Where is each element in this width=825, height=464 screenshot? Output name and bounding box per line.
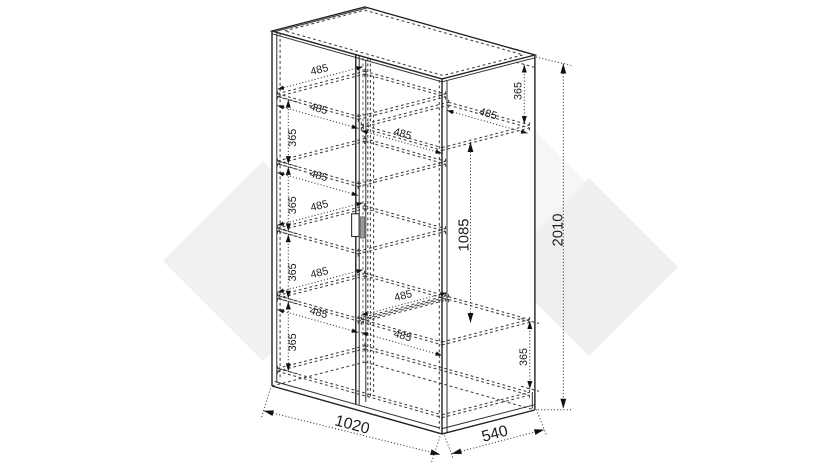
svg-text:365: 365 xyxy=(287,196,299,214)
svg-text:365: 365 xyxy=(287,333,299,351)
svg-text:365: 365 xyxy=(287,263,299,281)
svg-text:365: 365 xyxy=(287,129,299,147)
svg-text:1085: 1085 xyxy=(457,219,473,252)
svg-text:365: 365 xyxy=(518,348,530,366)
svg-text:2010: 2010 xyxy=(550,214,566,247)
svg-text:365: 365 xyxy=(512,82,524,100)
